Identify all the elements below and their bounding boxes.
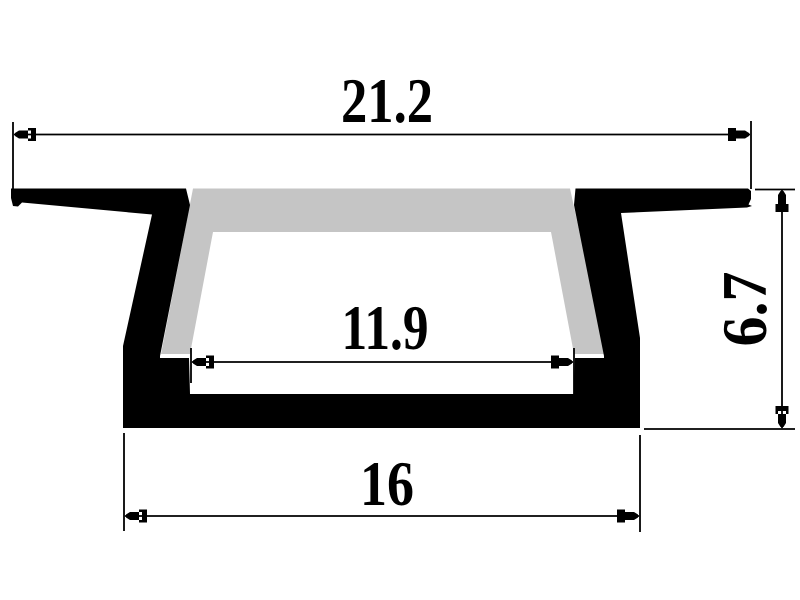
svg-text:6.7: 6.7 — [710, 272, 780, 347]
svg-text:21.2: 21.2 — [341, 66, 433, 136]
svg-text:16: 16 — [360, 449, 414, 519]
svg-text:11.9: 11.9 — [342, 293, 429, 363]
